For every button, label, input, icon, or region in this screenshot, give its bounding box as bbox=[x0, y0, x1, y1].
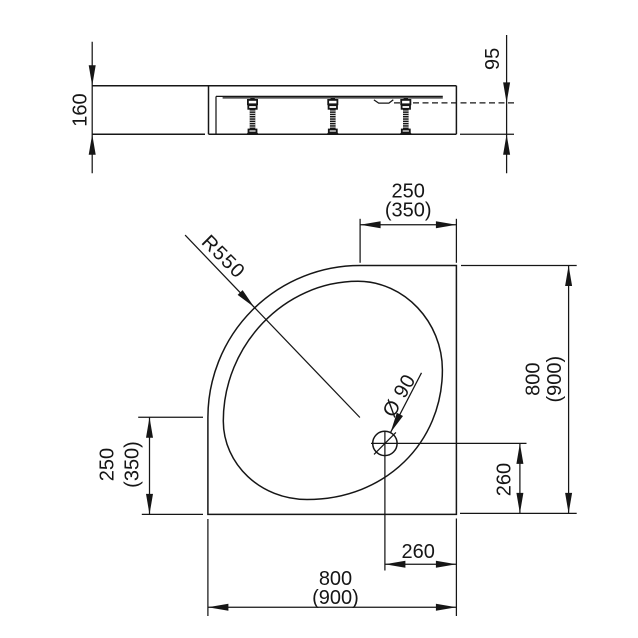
svg-text:800: 800 bbox=[522, 363, 544, 396]
svg-text:(350): (350) bbox=[385, 200, 432, 222]
svg-text:260: 260 bbox=[493, 463, 515, 496]
svg-text:(900): (900) bbox=[312, 587, 359, 609]
svg-text:(350): (350) bbox=[122, 441, 144, 488]
svg-text:95: 95 bbox=[482, 48, 504, 70]
svg-text:160: 160 bbox=[70, 93, 92, 126]
svg-text:(900): (900) bbox=[544, 356, 566, 403]
svg-text:250: 250 bbox=[97, 448, 119, 481]
svg-text:260: 260 bbox=[402, 541, 435, 563]
